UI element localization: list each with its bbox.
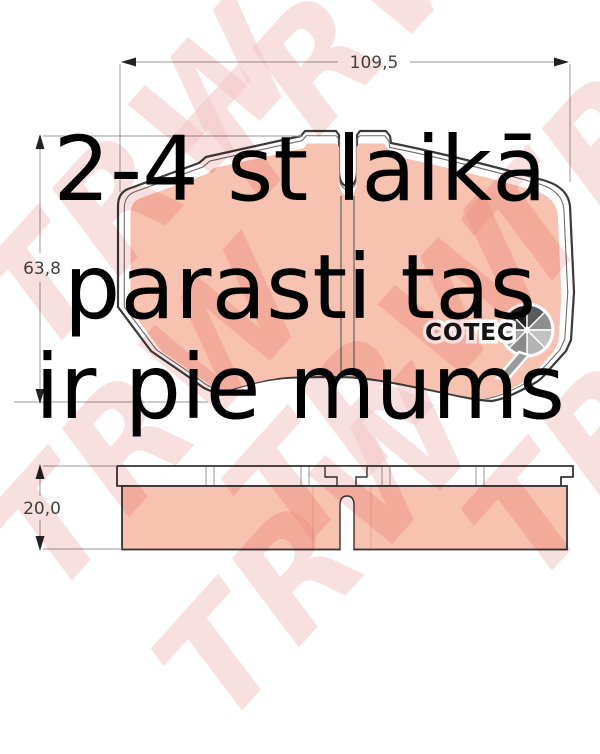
brake-pad-technical-drawing: 109,5 63,8 20,0 [0, 0, 600, 600]
cotec-logo-text-fill: COTEC [425, 320, 515, 346]
friction-material-front [131, 144, 562, 399]
side-view-slot [340, 496, 354, 551]
brake-pad-front-view [118, 131, 574, 401]
thickness-dimension-label: 20,0 [23, 499, 61, 519]
brake-pad-side-view [117, 466, 573, 551]
width-dimension-label: 109,5 [350, 53, 399, 73]
product-image: 109,5 63,8 20,0 [0, 0, 600, 600]
height-dimension-label: 63,8 [23, 259, 61, 279]
